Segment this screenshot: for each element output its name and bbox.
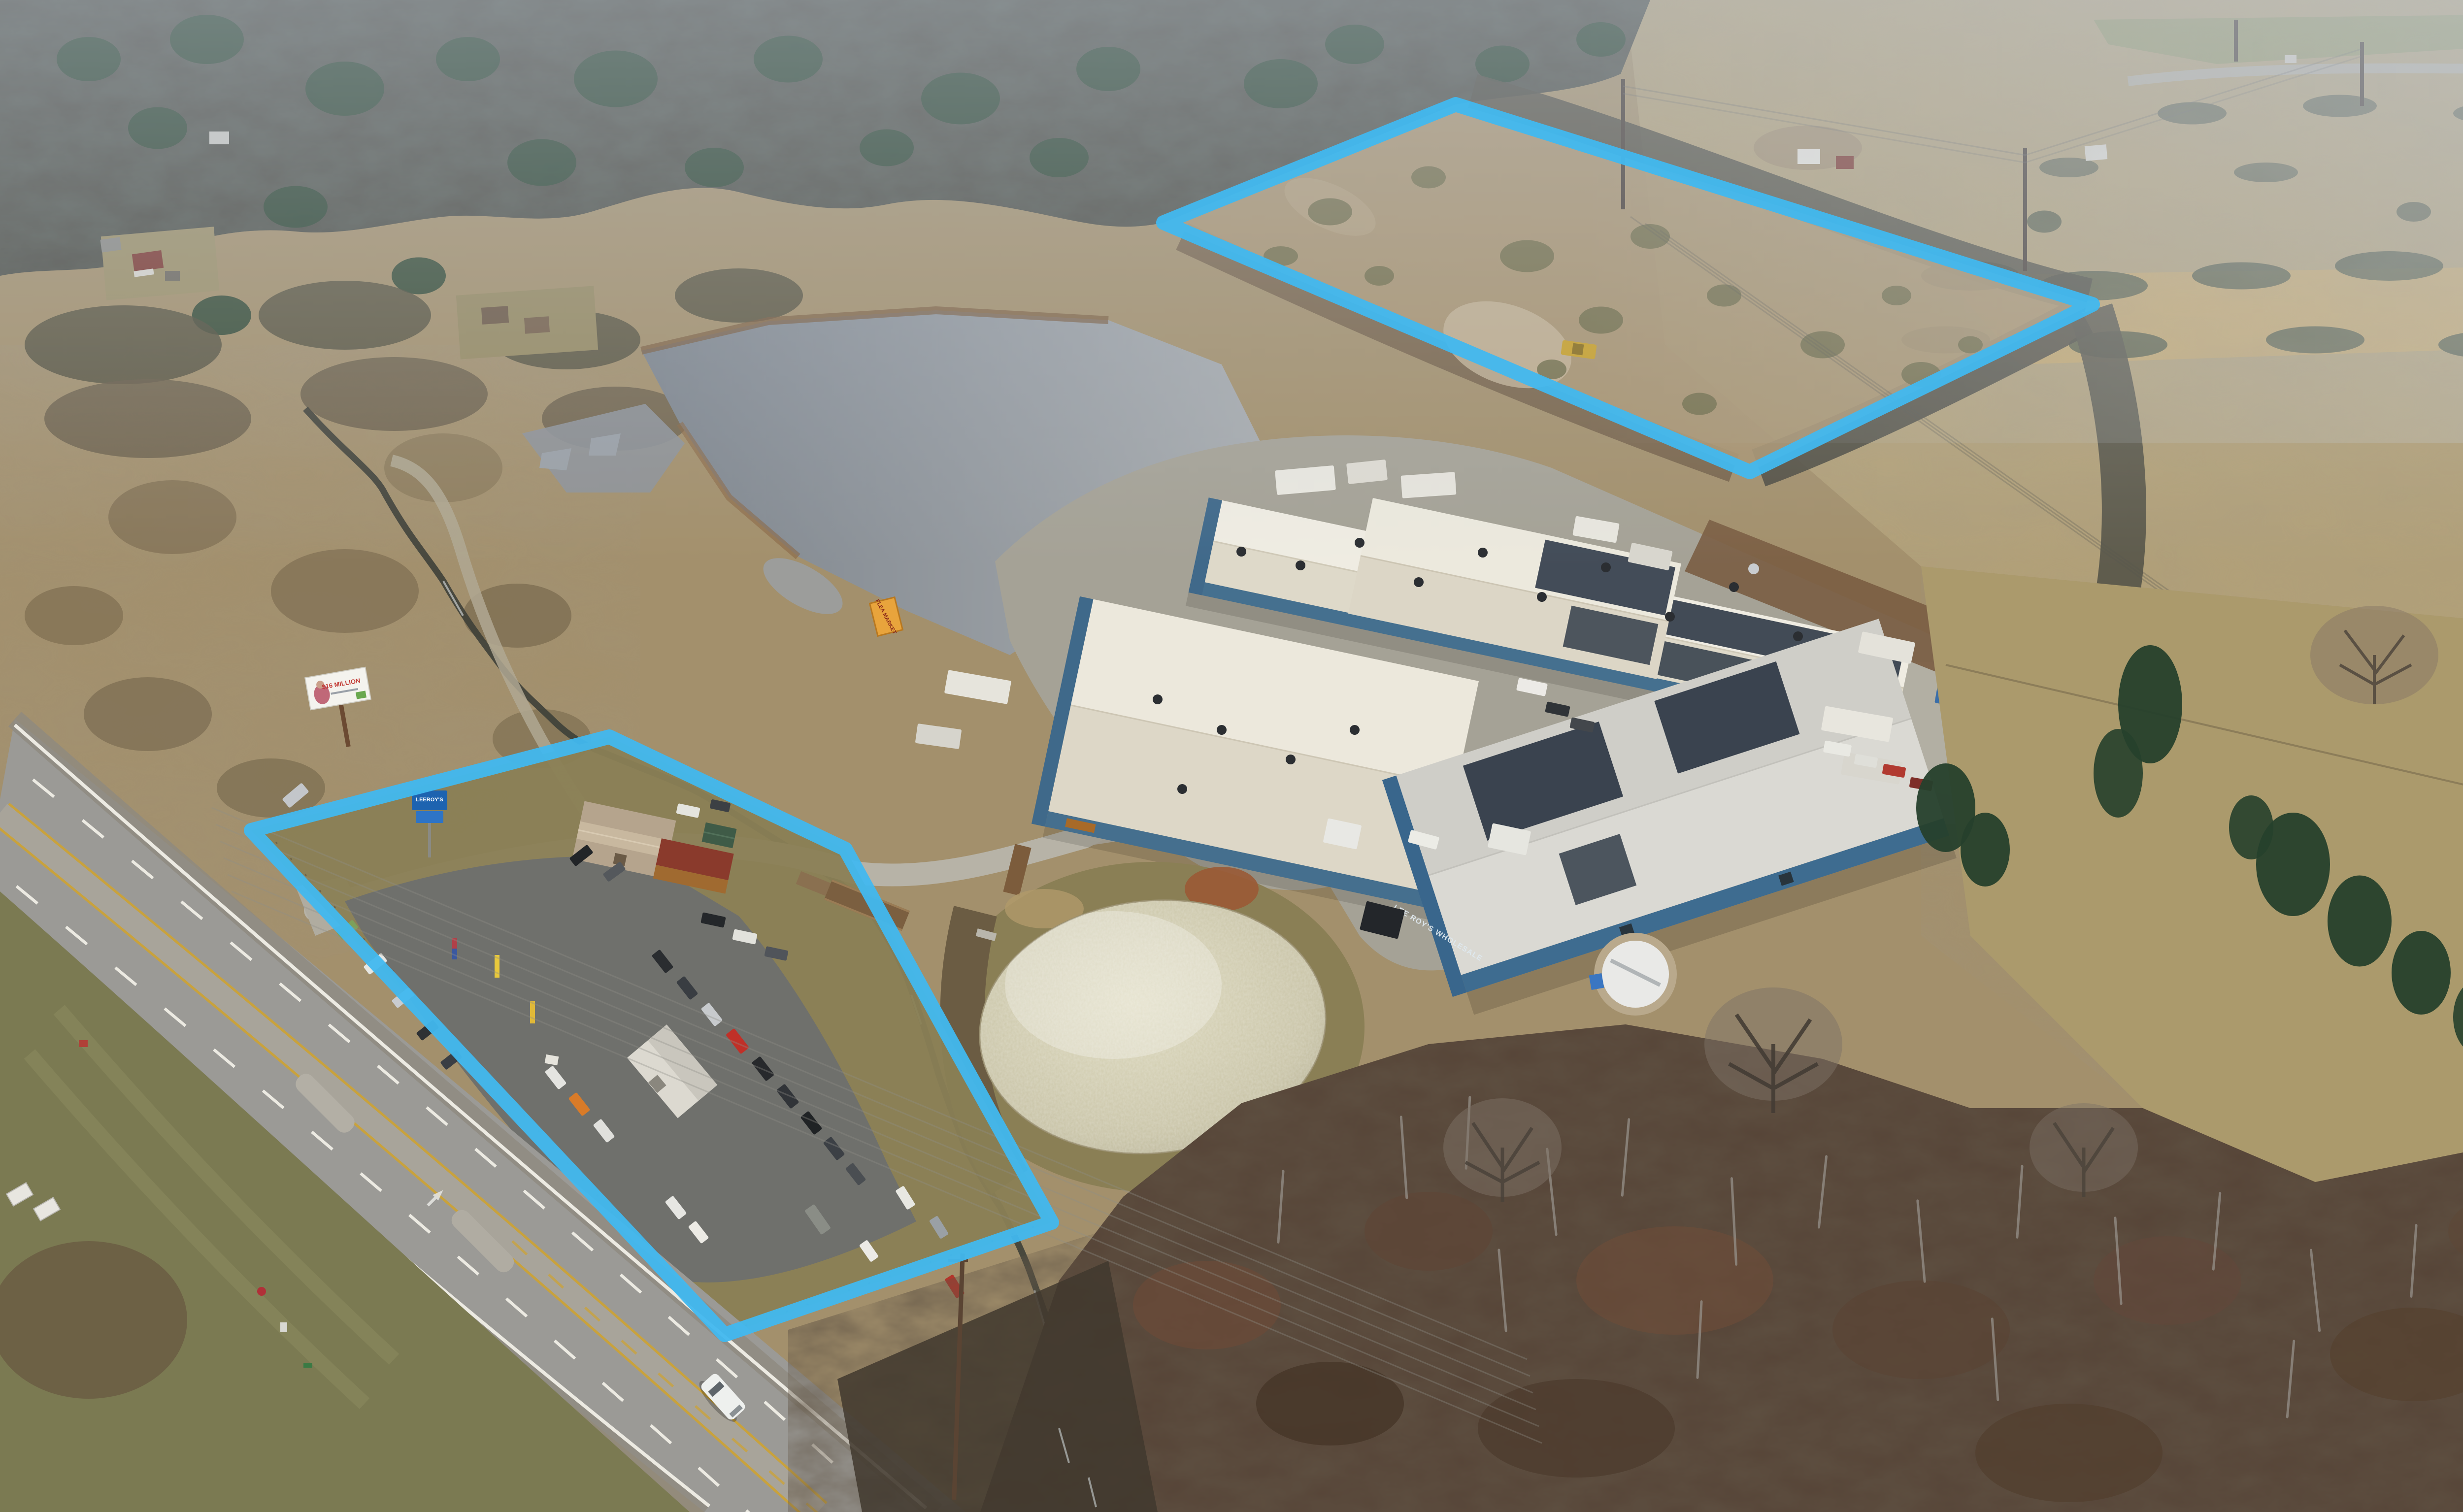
cedar-tree	[2229, 795, 2273, 859]
sign-panel-sub	[416, 811, 443, 823]
sign-pole	[428, 823, 431, 857]
roof-vent	[1153, 694, 1163, 704]
roof-vent	[1665, 612, 1675, 622]
cedar-tree	[2094, 729, 2143, 818]
aerial-photo: FLEA MARKET $16 MILLION	[0, 0, 2463, 1512]
brush-patch	[1832, 1281, 2010, 1379]
brush-patch	[1975, 1404, 2163, 1502]
round-sign	[257, 1287, 266, 1296]
brush-patch	[1256, 1362, 1404, 1446]
roof-vent	[1729, 582, 1739, 592]
cedar-tree	[2392, 931, 2451, 1015]
roof-vent	[1350, 725, 1360, 735]
green-street-sign	[303, 1363, 312, 1368]
roof-vent	[1217, 725, 1227, 735]
utility-box	[280, 1322, 287, 1332]
brush-patch	[1576, 1226, 1773, 1335]
pool-gear	[1589, 973, 1604, 990]
red-sign	[79, 1040, 88, 1047]
brush-patch	[25, 586, 123, 645]
roof-vent	[1177, 784, 1187, 794]
haze-right	[1576, 0, 2463, 443]
roof-vent	[1537, 592, 1547, 602]
brush-patch	[2094, 1236, 2241, 1325]
cedar-tree	[2328, 876, 2392, 967]
sign-text: LEEROY'S	[416, 797, 443, 803]
brush-patch	[84, 677, 212, 751]
roof-vent	[1414, 577, 1424, 587]
brush-patch	[1133, 1261, 1281, 1349]
brush-patch	[1365, 1192, 1493, 1271]
cedar-tree	[1961, 813, 2010, 887]
roof-vent	[1793, 631, 1803, 641]
roof-vent	[1286, 755, 1296, 764]
